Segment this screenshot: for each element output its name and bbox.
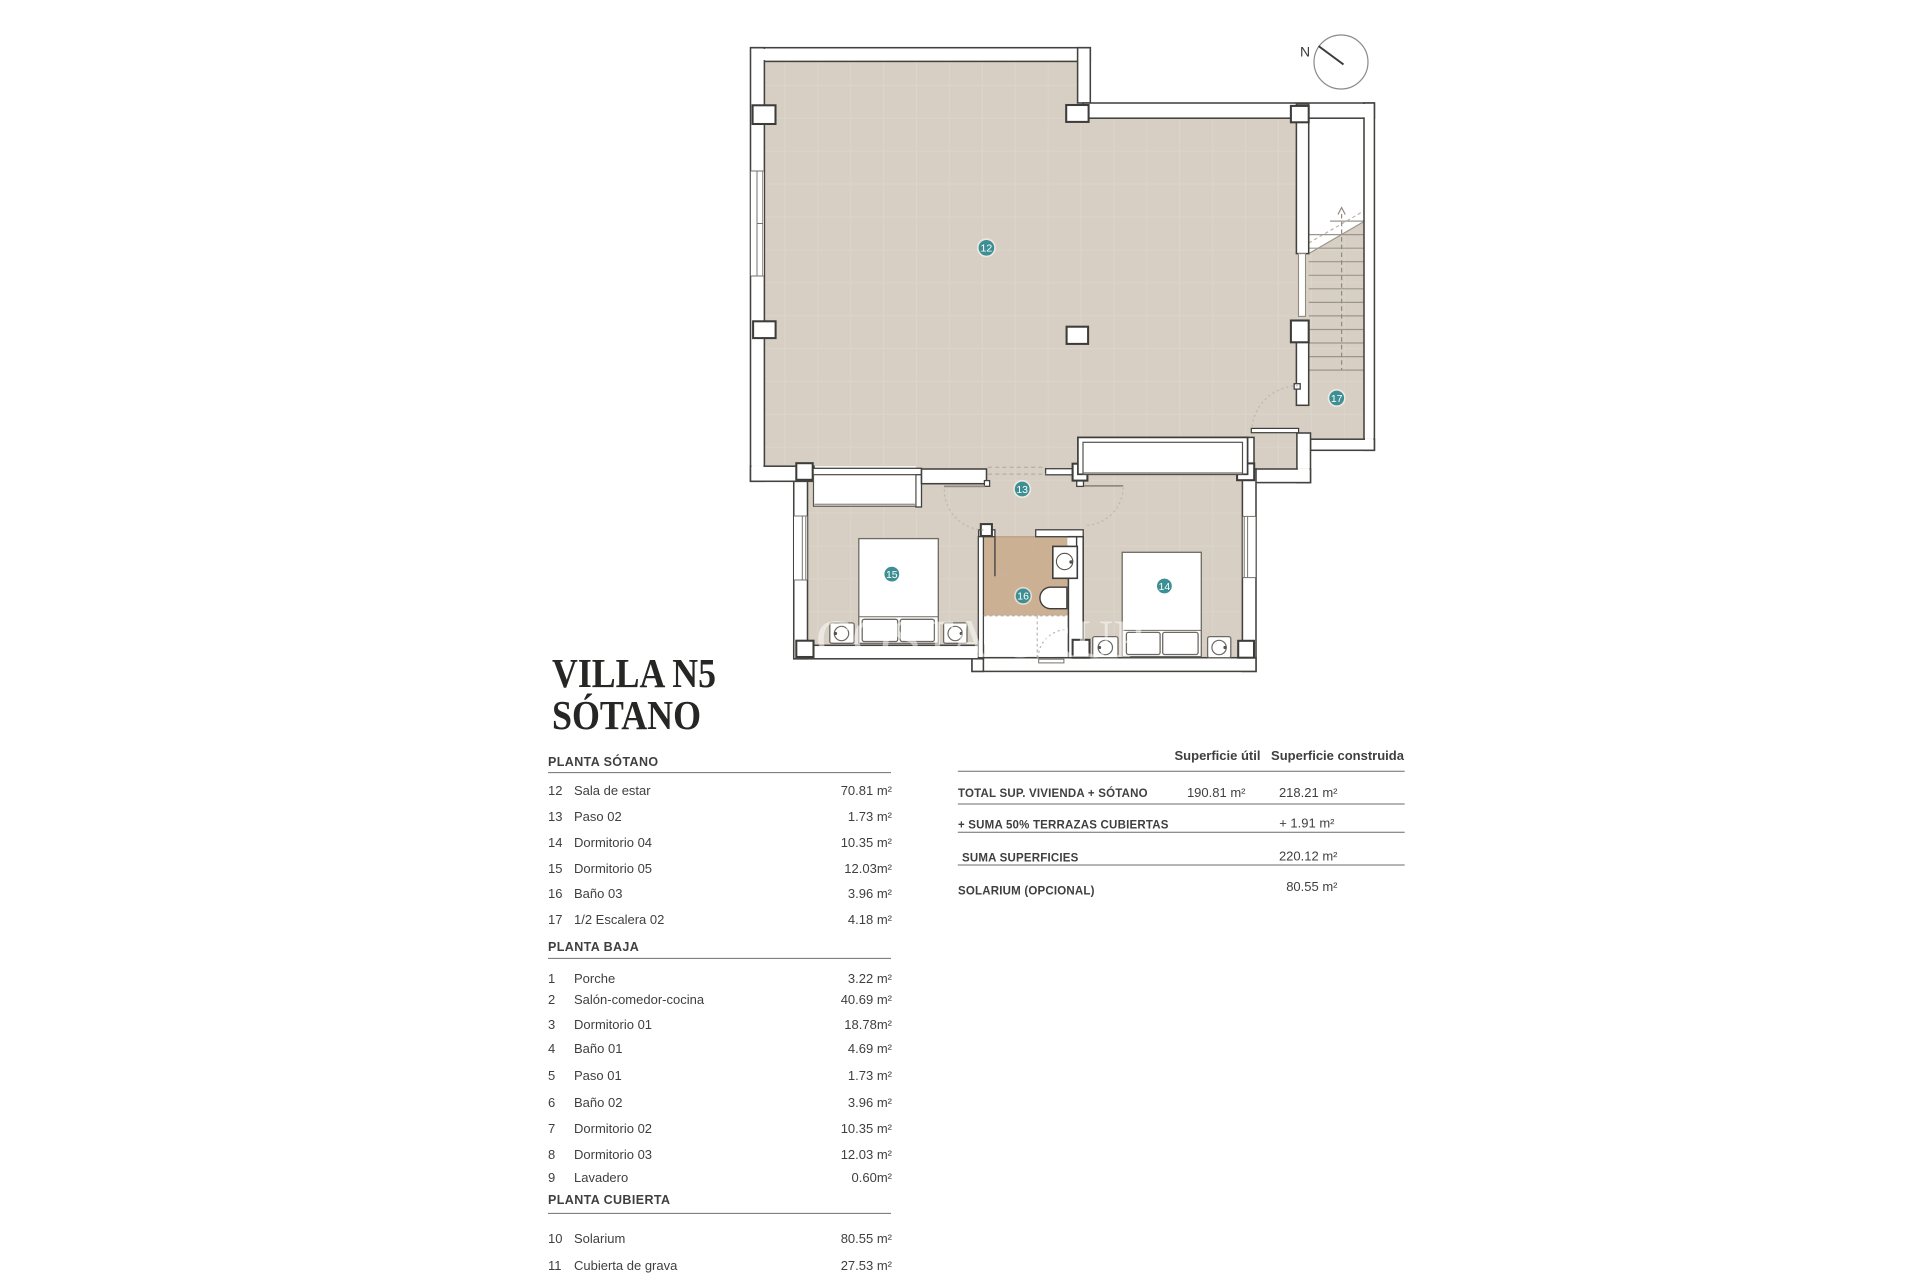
svg-text:Lavadero: Lavadero [574, 1170, 628, 1185]
svg-text:4.18 m²: 4.18 m² [848, 912, 893, 927]
svg-text:80.55 m²: 80.55 m² [1286, 879, 1338, 894]
svg-text:18.78m²: 18.78m² [844, 1017, 892, 1032]
svg-text:Superficie construida: Superficie construida [1271, 748, 1405, 763]
svg-text:TOTAL SUP. VIVIENDA + SÓTANO: TOTAL SUP. VIVIENDA + SÓTANO [958, 787, 1148, 800]
svg-text:13: 13 [1016, 484, 1028, 496]
svg-text:N: N [1300, 44, 1310, 60]
svg-text:SÓTANO: SÓTANO [552, 692, 701, 738]
svg-text:70.81 m²: 70.81 m² [841, 783, 893, 798]
svg-text:PLANTA SÓTANO: PLANTA SÓTANO [548, 754, 659, 769]
svg-text:Baño 02: Baño 02 [574, 1095, 622, 1110]
svg-text:4.69 m²: 4.69 m² [848, 1041, 893, 1056]
svg-text:17: 17 [548, 912, 562, 927]
svg-text:15: 15 [548, 861, 562, 876]
svg-text:PLANTA BAJA: PLANTA BAJA [548, 940, 639, 954]
svg-text:17: 17 [1331, 393, 1343, 405]
svg-text:Dormitorio 01: Dormitorio 01 [574, 1017, 652, 1032]
svg-text:+ SUMA 50% TERRAZAS CUBIERTAS: + SUMA 50% TERRAZAS CUBIERTAS [958, 820, 1169, 832]
svg-text:9: 9 [548, 1170, 555, 1185]
svg-text:1.73 m²: 1.73 m² [848, 809, 893, 824]
svg-text:Porche: Porche [574, 971, 615, 986]
svg-text:Dormitorio 02: Dormitorio 02 [574, 1121, 652, 1136]
svg-text:12: 12 [548, 783, 562, 798]
svg-text:2: 2 [548, 992, 555, 1007]
svg-text:Dormitorio 05: Dormitorio 05 [574, 861, 652, 876]
svg-text:10.35 m²: 10.35 m² [841, 835, 893, 850]
svg-text:Sala de estar: Sala de estar [574, 783, 651, 798]
svg-text:12: 12 [981, 243, 993, 255]
svg-text:12.03m²: 12.03m² [844, 861, 892, 876]
svg-text:Dormitorio 04: Dormitorio 04 [574, 835, 652, 850]
svg-text:218.21 m²: 218.21 m² [1279, 785, 1338, 800]
svg-text:8: 8 [548, 1147, 555, 1162]
svg-text:Solarium: Solarium [574, 1231, 625, 1246]
svg-text:SUMA SUPERFICIES: SUMA SUPERFICIES [962, 853, 1079, 865]
svg-text:1: 1 [548, 971, 555, 986]
svg-text:3: 3 [548, 1017, 555, 1032]
svg-text:7: 7 [548, 1121, 555, 1136]
svg-text:Superficie útil: Superficie útil [1175, 748, 1261, 763]
svg-text:Dormitorio 03: Dormitorio 03 [574, 1147, 652, 1162]
svg-text:5: 5 [548, 1068, 555, 1083]
svg-text:3.22 m²: 3.22 m² [848, 971, 893, 986]
svg-text:220.12 m²: 220.12 m² [1279, 849, 1338, 864]
svg-text:40.69 m²: 40.69 m² [841, 992, 893, 1007]
svg-text:+ 1.91 m²: + 1.91 m² [1279, 816, 1335, 831]
svg-text:3.96 m²: 3.96 m² [848, 886, 893, 901]
svg-text:12.03 m²: 12.03 m² [841, 1147, 893, 1162]
svg-text:14: 14 [548, 835, 562, 850]
svg-text:27.53 m²: 27.53 m² [841, 1258, 893, 1273]
svg-text:13: 13 [548, 809, 562, 824]
svg-text:Paso 01: Paso 01 [574, 1068, 622, 1083]
svg-text:10: 10 [548, 1231, 562, 1246]
svg-text:SOLARIUM (OPCIONAL): SOLARIUM (OPCIONAL) [958, 886, 1095, 898]
svg-text:PLANTA CUBIERTA: PLANTA CUBIERTA [548, 1193, 670, 1207]
svg-text:190.81 m²: 190.81 m² [1187, 785, 1246, 800]
svg-text:Paso 02: Paso 02 [574, 809, 622, 824]
svg-text:Cubierta de grava: Cubierta de grava [574, 1258, 678, 1273]
svg-text:1.73 m²: 1.73 m² [848, 1068, 893, 1083]
svg-text:0.60m²: 0.60m² [852, 1170, 893, 1185]
svg-text:COSTA GRUP: COSTA GRUP [816, 609, 1143, 669]
svg-text:4: 4 [548, 1041, 555, 1056]
svg-text:15: 15 [886, 569, 898, 581]
svg-text:VILLA N5: VILLA N5 [552, 650, 716, 696]
svg-text:Salón-comedor-cocina: Salón-comedor-cocina [574, 992, 705, 1007]
svg-text:Baño 03: Baño 03 [574, 886, 622, 901]
svg-text:6: 6 [548, 1095, 555, 1110]
svg-text:Baño 01: Baño 01 [574, 1041, 622, 1056]
svg-text:11: 11 [548, 1258, 562, 1273]
svg-text:16: 16 [1017, 591, 1029, 603]
svg-text:10.35 m²: 10.35 m² [841, 1121, 893, 1136]
svg-text:1/2 Escalera 02: 1/2 Escalera 02 [574, 912, 664, 927]
svg-text:16: 16 [548, 886, 562, 901]
svg-text:80.55 m²: 80.55 m² [841, 1231, 893, 1246]
svg-text:3.96 m²: 3.96 m² [848, 1095, 893, 1110]
svg-text:14: 14 [1159, 581, 1171, 593]
